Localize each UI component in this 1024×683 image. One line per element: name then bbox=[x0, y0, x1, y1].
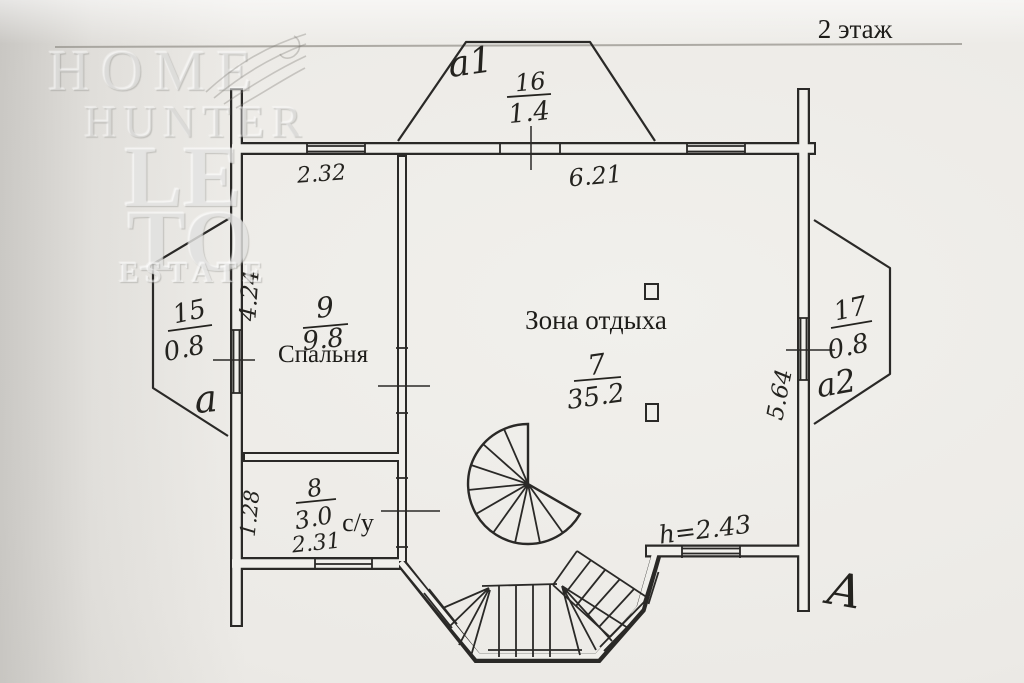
dim-bedroom-left: 4.24 bbox=[235, 269, 265, 323]
fraction-bars bbox=[168, 94, 872, 503]
dim-top-wall-right: 6.21 bbox=[567, 160, 623, 193]
floor-plan-scan: 2 этаж a1 16 1.4 2.32 6.21 4.24 15 0.8 a… bbox=[0, 0, 1024, 683]
lounge-label: Зона отдыха bbox=[525, 305, 667, 335]
bathroom-number: 8 bbox=[305, 473, 325, 503]
floor-title: 2 этаж bbox=[818, 14, 893, 44]
stair-chord bbox=[482, 584, 557, 586]
stair-right-fan bbox=[562, 586, 628, 655]
balcony-top-area: 1.4 bbox=[507, 96, 551, 130]
bay-right-area: 0.8 bbox=[825, 328, 872, 366]
stair-straight-treads bbox=[499, 584, 550, 657]
bay-left-area: 0.8 bbox=[161, 330, 208, 368]
column bbox=[646, 404, 658, 421]
lounge-area: 35.2 bbox=[565, 378, 627, 416]
bedroom-label: Спальня bbox=[278, 341, 369, 368]
balcony-top-label: a1 bbox=[446, 39, 496, 86]
bedroom-number: 9 bbox=[314, 290, 335, 325]
bay-left-label: a bbox=[192, 376, 219, 422]
bay-right-label: a2 bbox=[813, 361, 858, 405]
scan-edge-line bbox=[55, 44, 962, 47]
bay-left-number: 15 bbox=[170, 294, 209, 330]
dim-top-wall-left: 2.32 bbox=[295, 160, 347, 188]
lounge-number: 7 bbox=[586, 347, 608, 382]
floor-plan-drawing: 2 этаж a1 16 1.4 2.32 6.21 4.24 15 0.8 a… bbox=[0, 0, 1024, 683]
dim-bathroom-left: 1.28 bbox=[236, 489, 265, 538]
labels: 2 этаж a1 16 1.4 2.32 6.21 4.24 15 0.8 a… bbox=[161, 14, 893, 620]
bathroom-label: с/у bbox=[342, 508, 374, 537]
column bbox=[645, 284, 658, 299]
dim-right-wall: 5.64 bbox=[762, 367, 797, 422]
balcony-top-number: 16 bbox=[514, 67, 547, 98]
spiral-staircase bbox=[468, 424, 580, 544]
window-lines bbox=[230, 142, 810, 651]
dim-ceiling-height: h=2.43 bbox=[657, 510, 753, 550]
handwritten-signature: A bbox=[820, 560, 866, 620]
dim-bathroom-bottom: 2.31 bbox=[290, 529, 342, 559]
